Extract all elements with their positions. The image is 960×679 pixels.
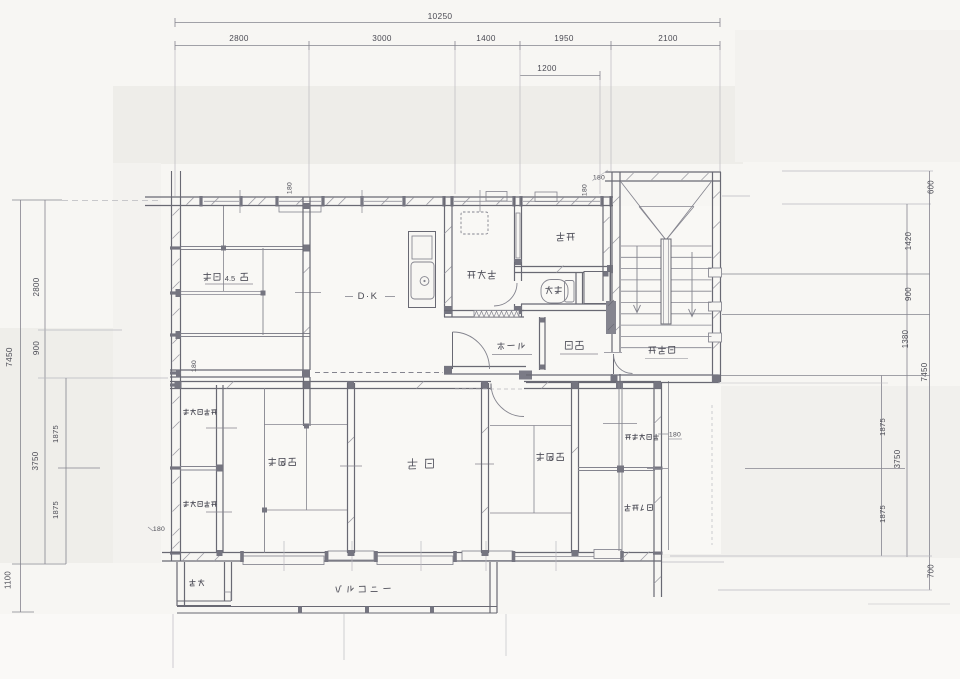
svg-text:3000: 3000 (372, 34, 392, 43)
svg-text:180: 180 (582, 184, 589, 196)
svg-text:3750: 3750 (893, 449, 902, 468)
svg-text:1400: 1400 (476, 34, 496, 43)
svg-text:3750: 3750 (31, 451, 40, 470)
svg-text:1875: 1875 (878, 505, 887, 523)
svg-text:1875: 1875 (878, 418, 887, 436)
svg-text:6: 6 (549, 454, 553, 463)
svg-text:6: 6 (281, 459, 285, 468)
svg-text:7450: 7450 (920, 362, 929, 381)
svg-text:1420: 1420 (904, 231, 913, 250)
svg-text:180: 180 (287, 182, 294, 194)
svg-text:2800: 2800 (229, 34, 249, 43)
svg-text:7450: 7450 (5, 347, 14, 367)
svg-text:1875: 1875 (51, 425, 60, 443)
svg-text:180: 180 (593, 175, 605, 182)
svg-text:1100: 1100 (4, 571, 13, 589)
svg-text:180: 180 (153, 526, 165, 533)
svg-text:1950: 1950 (554, 34, 574, 43)
svg-text:2800: 2800 (32, 277, 41, 296)
svg-text:180: 180 (191, 360, 198, 372)
svg-text:700: 700 (927, 564, 936, 578)
svg-text:900: 900 (904, 287, 913, 301)
svg-text:1380: 1380 (901, 329, 910, 348)
svg-text:2100: 2100 (658, 34, 678, 43)
svg-text:4.5: 4.5 (225, 274, 235, 283)
svg-text:1200: 1200 (537, 64, 557, 73)
svg-text:180: 180 (669, 432, 681, 439)
svg-text:1875: 1875 (51, 501, 60, 519)
svg-text:D·K: D·K (358, 291, 379, 302)
svg-text:900: 900 (32, 341, 41, 355)
svg-text:600: 600 (927, 180, 936, 194)
svg-text:10250: 10250 (428, 11, 453, 21)
